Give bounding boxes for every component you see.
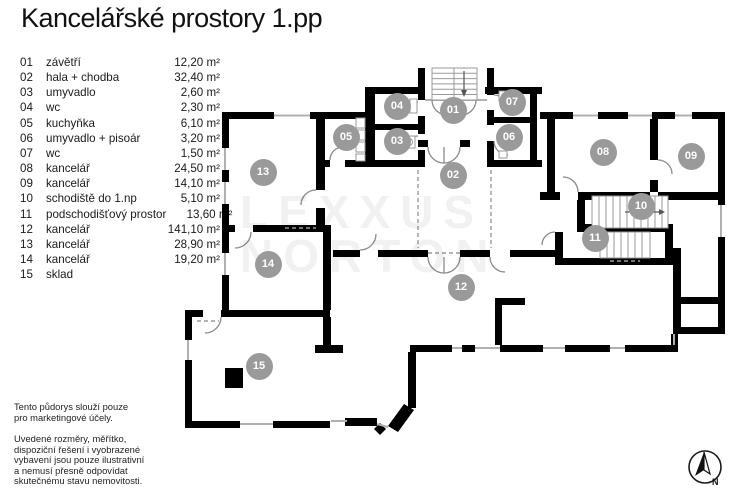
disclaimer-dimensions: Uvedené rozměry, měřítko,dispoziční řeše… [14, 434, 144, 487]
legend-num: 01 [20, 55, 46, 70]
room-badge-12: 12 [448, 274, 475, 301]
room-badge-15: 15 [246, 353, 273, 380]
legend-num: 12 [20, 222, 46, 237]
legend-num: 11 [20, 207, 46, 222]
room-badge-01: 01 [440, 97, 467, 124]
legend-label: schodiště do 1.np [46, 191, 154, 206]
room-badge-14: 14 [255, 251, 282, 278]
legend-label: kancelář [46, 237, 154, 252]
room-badge-05: 05 [333, 124, 360, 151]
legend-num: 03 [20, 85, 46, 100]
legend-label: kancelář [46, 161, 154, 176]
room-badge-07: 07 [499, 89, 526, 116]
legend-num: 04 [20, 100, 46, 115]
entry-stairs [432, 68, 477, 100]
legend-num: 05 [20, 116, 46, 131]
legend-num: 06 [20, 131, 46, 146]
legend-num: 13 [20, 237, 46, 252]
legend-num: 02 [20, 70, 46, 85]
legend-label: umyvadlo [46, 85, 154, 100]
legend-num: 08 [20, 161, 46, 176]
legend-label: hala + chodba [46, 70, 154, 85]
room-badge-08: 08 [590, 139, 617, 166]
legend-label: kancelář [46, 222, 154, 237]
legend-label: wc [46, 146, 154, 161]
legend-label: podschodišťový prostor [46, 207, 166, 222]
room-badge-02: 02 [440, 162, 467, 189]
floorplan-page: Kancelářské prostory 1.pp 01závětří12,20… [0, 0, 740, 493]
legend-label: sklad [46, 267, 154, 282]
legend-num: 09 [20, 176, 46, 191]
legend-label: kuchyňka [46, 116, 154, 131]
legend-num: 07 [20, 146, 46, 161]
legend-label: kancelář [46, 176, 154, 191]
legend-num: 10 [20, 191, 46, 206]
room-badge-09: 09 [678, 143, 705, 170]
legend-label: závětří [46, 55, 154, 70]
legend-label: kancelář [46, 252, 154, 267]
legend-label: wc [46, 100, 154, 115]
room-badge-10: 10 [628, 193, 655, 220]
legend-num: 14 [20, 252, 46, 267]
room-badge-11: 11 [582, 225, 609, 252]
page-title: Kancelářské prostory 1.pp [21, 3, 322, 34]
compass-north-label: N [712, 477, 719, 487]
disclaimer-marketing: Tento půdorys slouží pouzepro marketingo… [14, 402, 128, 423]
room-badge-13: 13 [250, 159, 277, 186]
room-badge-03: 03 [384, 128, 411, 155]
room-badge-06: 06 [496, 124, 523, 151]
legend-num: 15 [20, 267, 46, 282]
room-badge-04: 04 [384, 93, 411, 120]
legend-label: umyvadlo + pisoár [46, 131, 154, 146]
compass-icon: N [683, 446, 729, 492]
